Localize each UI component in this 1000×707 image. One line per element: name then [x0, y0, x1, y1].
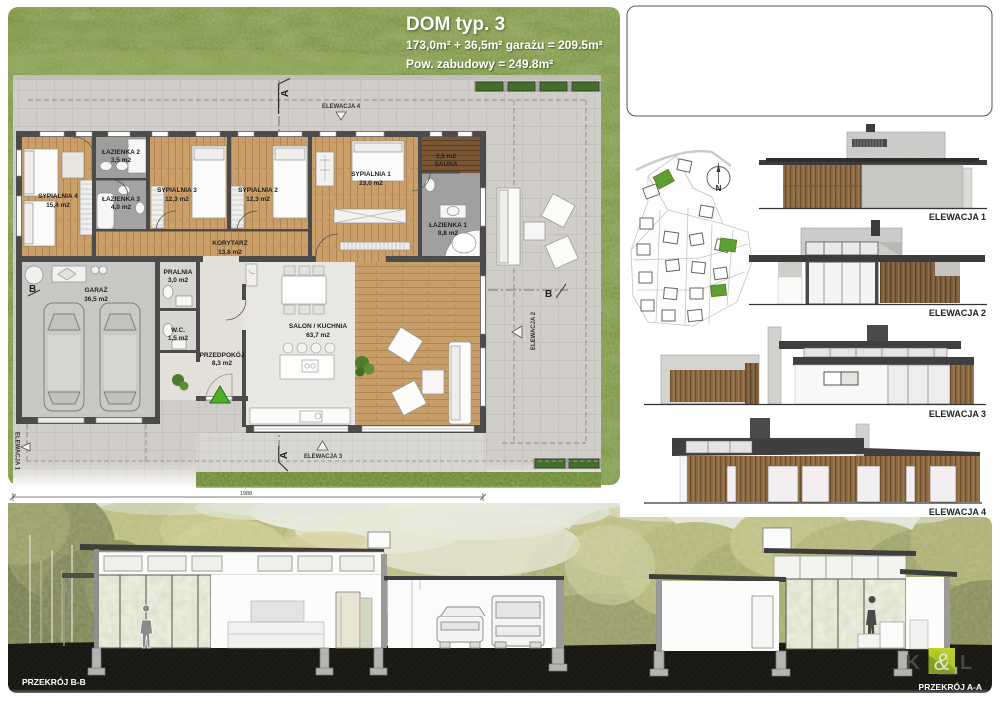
svg-text:PRZEKRÓJ B-B: PRZEKRÓJ B-B: [22, 676, 86, 687]
svg-text:N: N: [716, 184, 722, 193]
svg-text:K: K: [906, 652, 921, 674]
svg-text:ELEWACJA 3: ELEWACJA 3: [929, 409, 986, 419]
svg-text:8,8 m2: 8,8 m2: [438, 230, 459, 237]
svg-text:1988: 1988: [240, 491, 252, 497]
svg-text:13,8 m2: 13,8 m2: [218, 249, 242, 256]
svg-text:ELEWACJA 3: ELEWACJA 3: [304, 454, 343, 460]
svg-text:PRZEKRÓJ A-A: PRZEKRÓJ A-A: [919, 681, 982, 692]
svg-text:3,1 m2: 3,1 m2: [436, 153, 457, 160]
svg-text:A: A: [280, 90, 291, 97]
svg-text:3,5 m2: 3,5 m2: [111, 157, 132, 164]
svg-text:L: L: [960, 652, 972, 674]
svg-text:DOM typ. 3: DOM typ. 3: [406, 14, 505, 35]
svg-text:ŁAZIENKA 2: ŁAZIENKA 2: [102, 149, 140, 156]
svg-text:SYPIALNIA 1: SYPIALNIA 1: [351, 171, 391, 178]
svg-text:W.C.: W.C.: [171, 327, 185, 334]
svg-text:23,0 m2: 23,0 m2: [359, 180, 383, 187]
svg-text:ELEWACJA 1: ELEWACJA 1: [929, 212, 986, 222]
svg-text:&: &: [934, 649, 950, 676]
svg-text:ELEWACJA 4: ELEWACJA 4: [929, 507, 986, 517]
svg-text:SYPIALNIA 2: SYPIALNIA 2: [238, 187, 278, 194]
svg-text:B: B: [29, 284, 36, 295]
svg-text:A: A: [279, 452, 290, 459]
svg-text:12,3 m2: 12,3 m2: [165, 196, 189, 203]
svg-text:ELEWACJA 4: ELEWACJA 4: [322, 104, 361, 110]
svg-text:GARAŻ: GARAŻ: [84, 286, 107, 294]
svg-text:PRALNIA: PRALNIA: [164, 269, 193, 276]
svg-text:15,4 m2: 15,4 m2: [46, 202, 70, 209]
svg-text:ŁAZIENKA 3: ŁAZIENKA 3: [102, 196, 140, 203]
svg-text:PRZEDPOKÓJ: PRZEDPOKÓJ: [200, 350, 245, 359]
svg-text:63,7 m2: 63,7 m2: [306, 332, 330, 339]
svg-text:ELEWACJA 2: ELEWACJA 2: [929, 308, 986, 318]
svg-text:KORYTARZ: KORYTARZ: [212, 240, 247, 247]
svg-text:SAUNA: SAUNA: [434, 161, 457, 168]
svg-text:Pow. zabudowy = 249.8m²: Pow. zabudowy = 249.8m²: [406, 57, 553, 71]
svg-text:12,3 m2: 12,3 m2: [246, 196, 270, 203]
svg-text:8,3 m2: 8,3 m2: [212, 360, 233, 367]
svg-text:4,0 m2: 4,0 m2: [111, 204, 132, 211]
svg-text:SYPIALNIA 4: SYPIALNIA 4: [38, 193, 78, 200]
svg-text:B: B: [545, 289, 552, 300]
svg-text:3,0 m2: 3,0 m2: [168, 277, 189, 284]
svg-text:173,0m² + 36,5m² garażu = 209.: 173,0m² + 36,5m² garażu = 209.5m²: [406, 38, 603, 52]
svg-text:ŁAZIENKA 1: ŁAZIENKA 1: [429, 222, 467, 229]
svg-text:SYPIALNIA 3: SYPIALNIA 3: [157, 187, 197, 194]
svg-text:ELEWACJA 2: ELEWACJA 2: [531, 311, 537, 350]
svg-text:36,5 m2: 36,5 m2: [84, 296, 108, 303]
svg-text:ELEWACJA 1: ELEWACJA 1: [14, 432, 20, 471]
svg-text:SALON / KUCHNIA: SALON / KUCHNIA: [289, 323, 347, 330]
svg-text:1,5 m2: 1,5 m2: [168, 335, 189, 342]
